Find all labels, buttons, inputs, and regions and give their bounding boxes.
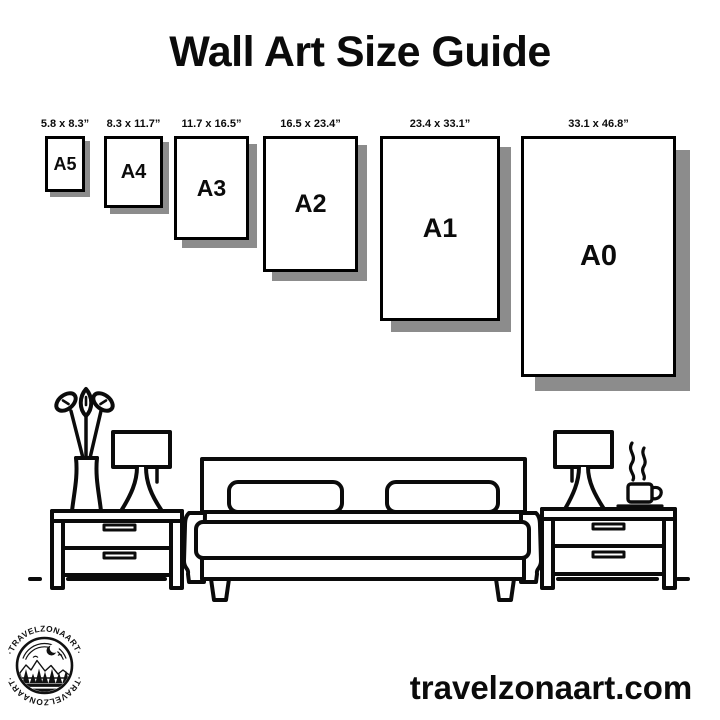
size-frame-a0: 33.1 x 46.8” A0 [521,136,676,377]
size-frame-a4: 8.3 x 11.7” A4 [104,136,163,208]
size-code-label: A0 [580,240,617,273]
poster-frame: A0 [521,136,676,377]
wall-art-size-guide-page: Wall Art Size Guide 5.8 x 8.3” A5 8.3 x … [0,0,720,720]
bed-icon [184,459,541,600]
size-code-label: A2 [295,190,327,219]
pillow-left [229,482,342,512]
page-title: Wall Art Size Guide [0,28,720,77]
size-dimensions-label: 8.3 x 11.7” [107,118,161,130]
size-code-label: A3 [197,175,226,202]
size-dimensions-label: 23.4 x 33.1” [410,118,471,130]
size-code-label: A1 [423,213,458,244]
bed-base [202,558,524,579]
size-dimensions-label: 11.7 x 16.5” [182,118,242,130]
poster-frame: A4 [104,136,163,208]
nightstand-right-icon [542,509,675,588]
size-frame-a3: 11.7 x 16.5” A3 [174,136,249,240]
size-dimensions-label: 33.1 x 46.8” [568,118,629,130]
bedroom-illustration [0,385,720,610]
bed-leg-left [211,579,229,600]
size-dimensions-label: 16.5 x 23.4” [280,118,341,130]
size-frame-a2: 16.5 x 23.4” A2 [263,136,358,272]
lamp-right-icon [555,432,612,509]
poster-frame: A3 [174,136,249,240]
brand-logo: ·TRAVELZONAART· ·TRAVELZONAART· [0,619,92,713]
bed-leg-right [496,579,514,600]
poster-frame: A1 [380,136,500,321]
size-frame-a5: 5.8 x 8.3” A5 [45,136,85,192]
nightstand-left-icon [52,511,182,588]
poster-frame: A5 [45,136,85,192]
poster-frame: A2 [263,136,358,272]
pillow-right [387,482,498,512]
size-code-label: A5 [53,154,76,175]
size-frame-a1: 23.4 x 33.1” A1 [380,136,500,321]
size-code-label: A4 [121,161,147,184]
size-dimensions-label: 5.8 x 8.3” [41,118,89,130]
website-url: travelzonaart.com [410,669,692,707]
coffee-cup-icon [618,443,662,506]
duvet [196,522,529,558]
lamp-left-icon [113,432,170,511]
vase-flowers-icon [53,389,116,511]
